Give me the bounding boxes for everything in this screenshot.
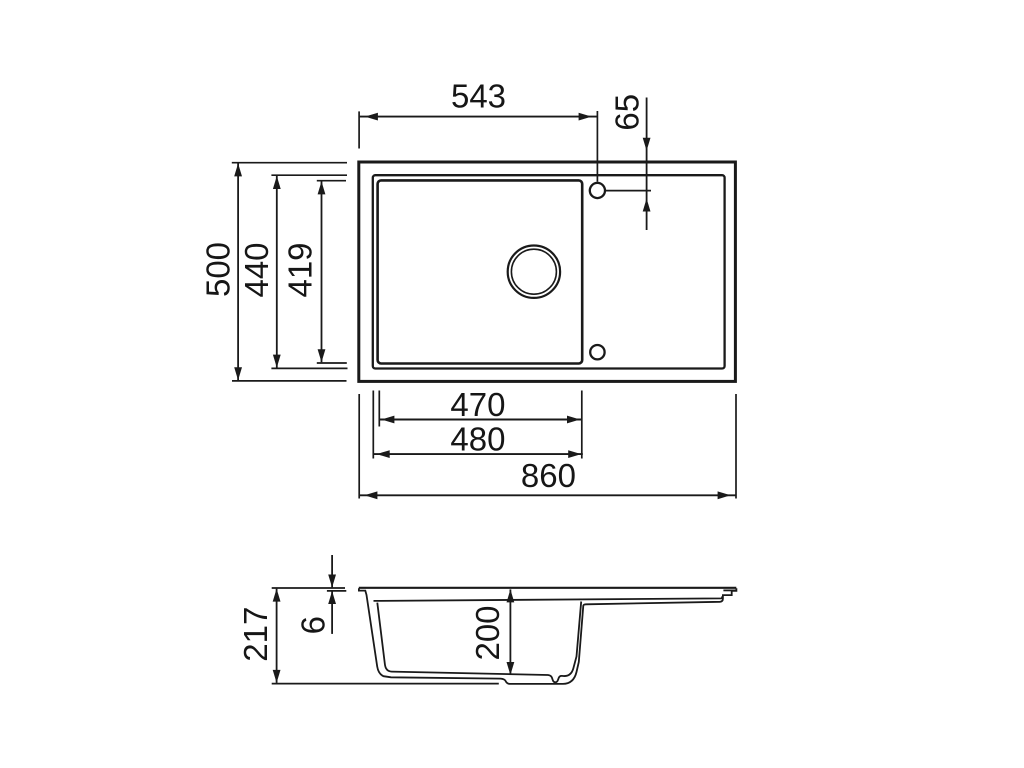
svg-text:480: 480 xyxy=(450,421,505,458)
svg-text:6: 6 xyxy=(295,616,332,634)
svg-text:65: 65 xyxy=(609,94,646,131)
svg-text:419: 419 xyxy=(281,242,318,297)
svg-text:200: 200 xyxy=(469,605,506,660)
svg-text:860: 860 xyxy=(521,457,576,494)
svg-text:543: 543 xyxy=(451,78,506,115)
svg-text:440: 440 xyxy=(238,242,275,297)
svg-text:500: 500 xyxy=(199,242,236,297)
svg-text:217: 217 xyxy=(237,607,274,662)
svg-text:470: 470 xyxy=(450,386,505,423)
